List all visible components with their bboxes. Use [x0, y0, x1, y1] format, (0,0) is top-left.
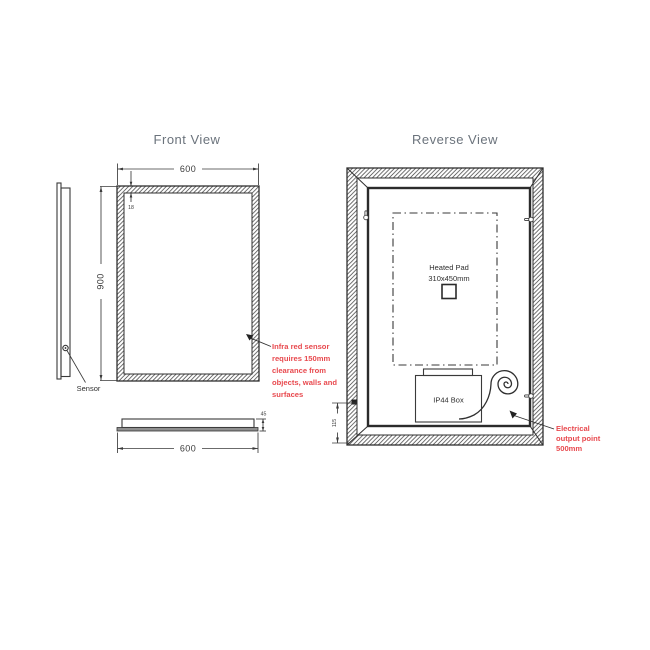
view-titles: Front View Reverse View [154, 132, 499, 147]
dim-arrow [118, 168, 124, 171]
note-line: objects, walls and [272, 378, 337, 387]
dim-arrow [100, 375, 103, 381]
reverse-back-panel [368, 188, 530, 426]
front-view-title: Front View [154, 132, 221, 147]
heated-pad-label: Heated Pad [429, 263, 469, 272]
heated-pad-connector [442, 285, 456, 299]
keyhole-circle [529, 394, 534, 399]
front-height-value: 900 [96, 273, 106, 289]
front-view: 600 900 18 [96, 164, 260, 382]
side-glass-profile [57, 183, 61, 379]
dim-front-width: 600 [118, 164, 259, 186]
note-line: clearance from [272, 366, 326, 375]
dim-arrow [336, 403, 339, 409]
sensor-label: Sensor [77, 384, 101, 393]
note-line: 500mm [556, 444, 582, 453]
dim-arrow [130, 193, 133, 198]
bottom-body-profile [122, 419, 254, 428]
bottom-width-value: 600 [180, 444, 196, 454]
dim-arrow [262, 419, 265, 423]
sensor-dot-center [65, 347, 67, 349]
side-profile: Sensor [57, 183, 101, 393]
front-frame-outer [117, 186, 259, 381]
technical-drawing: Front View Reverse View 600 900 [0, 0, 650, 650]
dim-arrow [100, 187, 103, 193]
note-line: output point [556, 434, 601, 443]
note-line: surfaces [272, 390, 303, 399]
dim-bottom-width: 600 [118, 433, 259, 454]
fixing-point-marker [352, 400, 357, 405]
keyhole-circle [364, 215, 369, 220]
keyhole-circle [529, 217, 534, 222]
note-line: Electrical [556, 424, 590, 433]
sensor-clearance-note: Infra red sensor requires 150mm clearanc… [246, 334, 337, 399]
ip44-box-label: IP44 Box [433, 396, 464, 405]
dim-arrow [253, 447, 259, 450]
mirror-technical-diagram: Front View Reverse View 600 900 [0, 0, 650, 650]
reverse-view-title: Reverse View [412, 132, 498, 147]
dim-arrow [118, 447, 124, 450]
reverse-view: Heated Pad 310x450mm IP44 Box 115 [332, 168, 543, 445]
frame-thickness-value: 18 [128, 205, 134, 211]
dim-arrow [336, 438, 339, 444]
front-width-value: 600 [180, 164, 196, 174]
note-line: requires 150mm [272, 354, 330, 363]
front-frame-hatch [117, 186, 259, 381]
bottom-depth-value: 45 [261, 412, 267, 418]
heated-pad-size-label: 310x450mm [428, 274, 469, 283]
cable-height-value: 115 [332, 419, 338, 427]
bottom-glass-profile [117, 428, 258, 432]
front-frame-inner [124, 193, 252, 374]
bottom-profile: 45 600 [117, 412, 266, 454]
dim-front-height: 900 [96, 187, 118, 381]
note-line: Infra red sensor [272, 342, 329, 351]
dim-arrow [262, 427, 265, 431]
dim-arrow [253, 168, 259, 171]
